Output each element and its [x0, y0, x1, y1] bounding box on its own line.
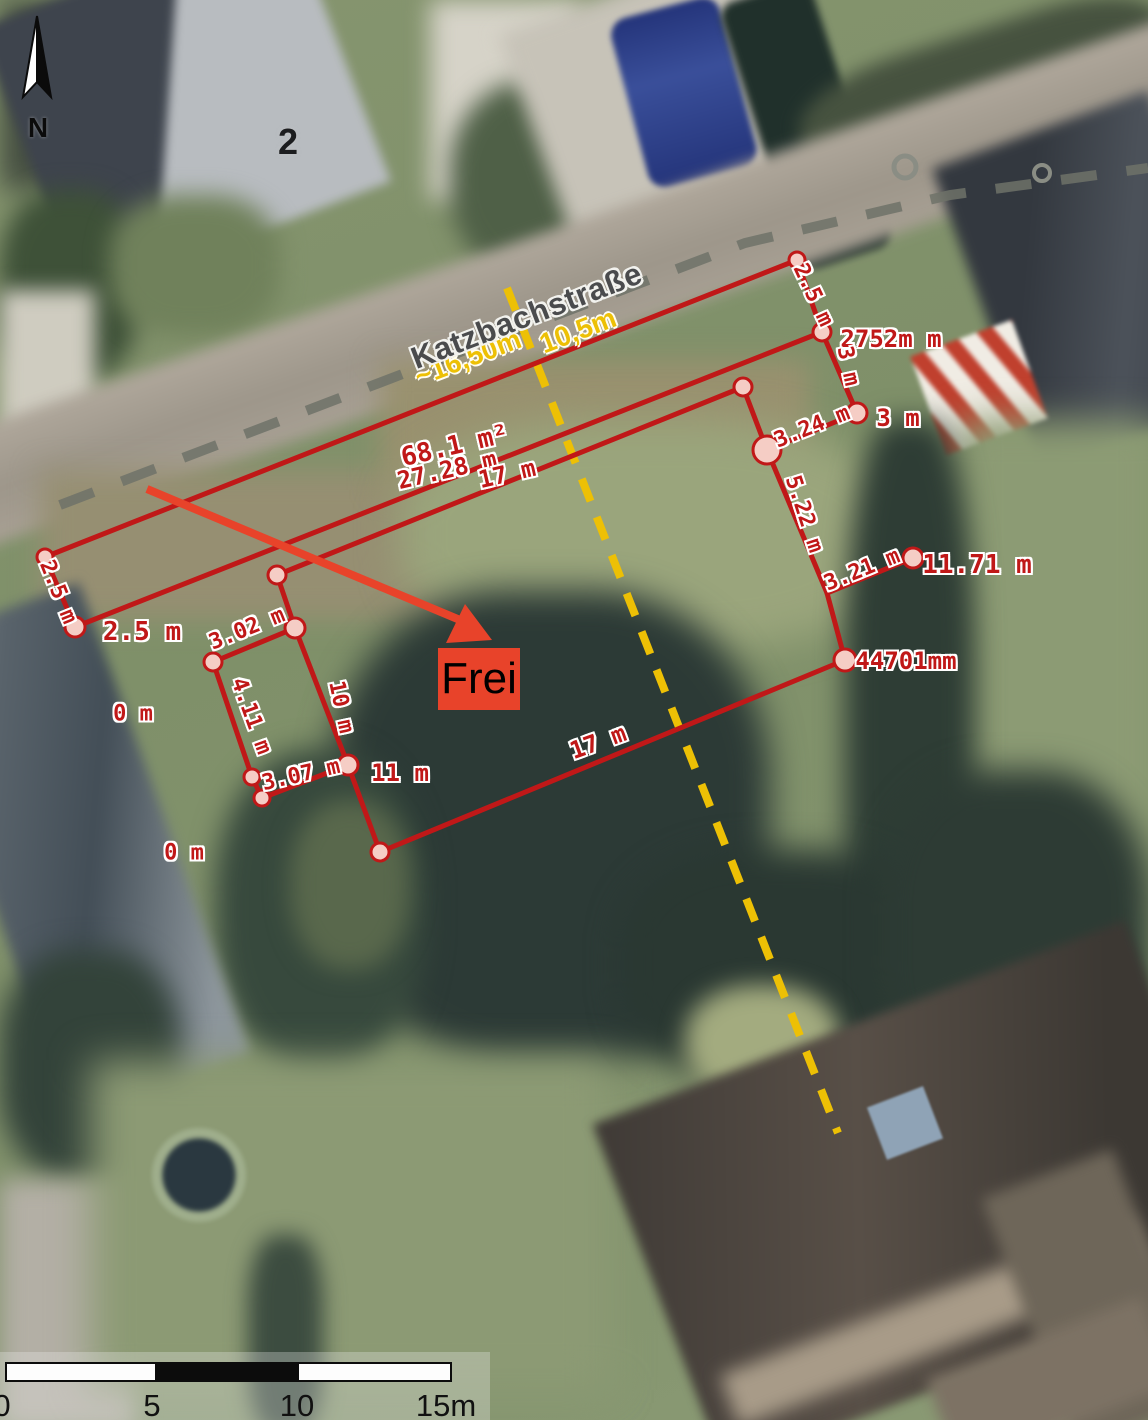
north-label: N: [28, 112, 48, 144]
frei-label-box: Frei: [438, 648, 520, 710]
scale-tick-label: 0: [0, 1388, 11, 1420]
measurement-label: 2.5 m: [788, 260, 839, 331]
scale-bar: [5, 1362, 452, 1382]
scale-bar-segment: [7, 1364, 155, 1380]
garden-left-2: [110, 195, 280, 335]
measurement-label: 3 m: [832, 344, 865, 388]
scale-tick-label: 15m: [416, 1388, 476, 1420]
measurement-label: 4.11 m: [226, 674, 277, 757]
lawn-bottom-left: [90, 1060, 610, 1390]
aerial-parcel-map: 2.5 m2.5 m68.1 m²27.28 m17 m2.5 m2752m m…: [0, 0, 1148, 1420]
scale-tick-label: 10: [280, 1388, 314, 1420]
measurement-label: 2.5 m: [103, 617, 181, 647]
measurement-label: 2752m m: [840, 325, 941, 353]
house-number-label: 2: [278, 121, 298, 163]
trampoline: [152, 1128, 246, 1222]
scale-bar-segment: [155, 1364, 299, 1380]
tree-left-highlight: [290, 800, 410, 970]
scale-tick-label: 5: [143, 1388, 160, 1420]
scale-bar-segment: [299, 1364, 450, 1380]
